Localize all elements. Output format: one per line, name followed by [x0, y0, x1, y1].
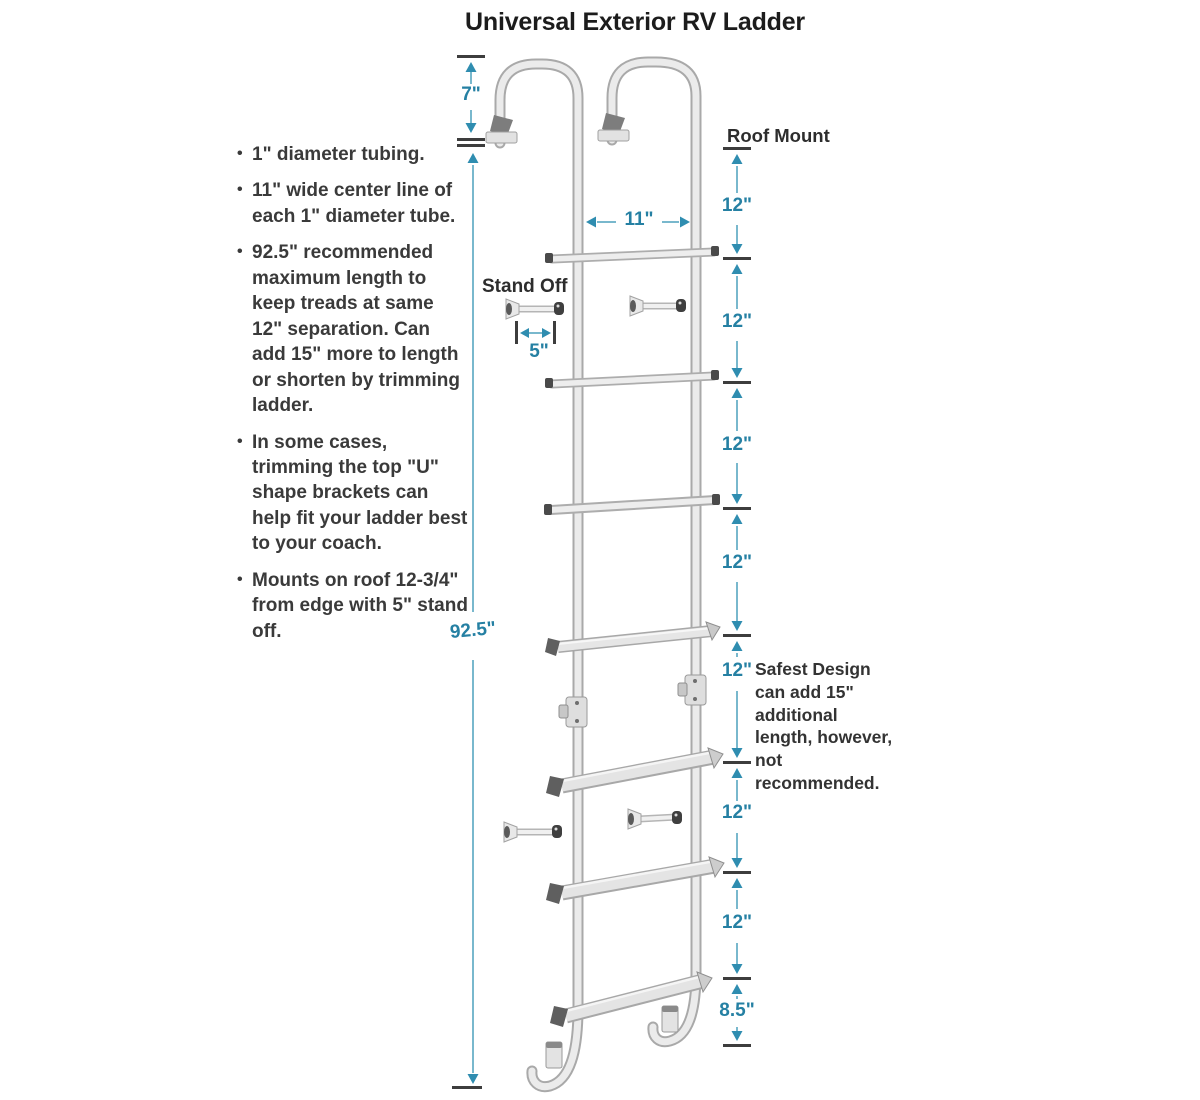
stand-off-label: Stand Off [482, 276, 568, 298]
standoff-lower-inner [628, 809, 682, 829]
splice-clamp-left [559, 697, 587, 727]
bottom-mount-plate-left [546, 1042, 562, 1068]
roof-mount-label: Roof Mount [727, 125, 830, 147]
ladder-illustration [0, 0, 1200, 1100]
dim-label-12in-1: 12" [715, 195, 759, 217]
bottom-mount-plate-right [662, 1006, 678, 1032]
dim-label-12in-3: 12" [715, 434, 759, 456]
dim-label-11in: 11" [617, 209, 661, 231]
splice-clamp-right [678, 675, 706, 705]
standoff-lower-left [504, 822, 562, 842]
ladder-graphic [486, 62, 724, 1087]
safest-design-note: Safest Design can add 15" additional len… [755, 658, 893, 795]
dimension-marks [452, 55, 751, 1089]
standoff-upper-left [506, 299, 564, 319]
rv-ladder-diagram-page: Universal Exterior RV Ladder 1" diameter… [0, 0, 1200, 1100]
dim-label-8-5in: 8.5" [711, 1000, 763, 1022]
dim-label-7in: 7" [449, 84, 493, 106]
reference-ticks [452, 55, 751, 1089]
dim-label-12in-7: 12" [715, 912, 759, 934]
dim-label-12in-6: 12" [715, 802, 759, 824]
left-rail [500, 64, 578, 1087]
dim-label-12in-4: 12" [715, 552, 759, 574]
dim-label-5in: 5" [522, 341, 556, 363]
standoff-upper-inner [630, 296, 686, 316]
dim-label-12in-2: 12" [715, 311, 759, 333]
dim-label-12in-5: 12" [715, 660, 759, 682]
roof-mount-foot-right [598, 113, 629, 141]
roof-mount-foot-left [486, 115, 517, 143]
